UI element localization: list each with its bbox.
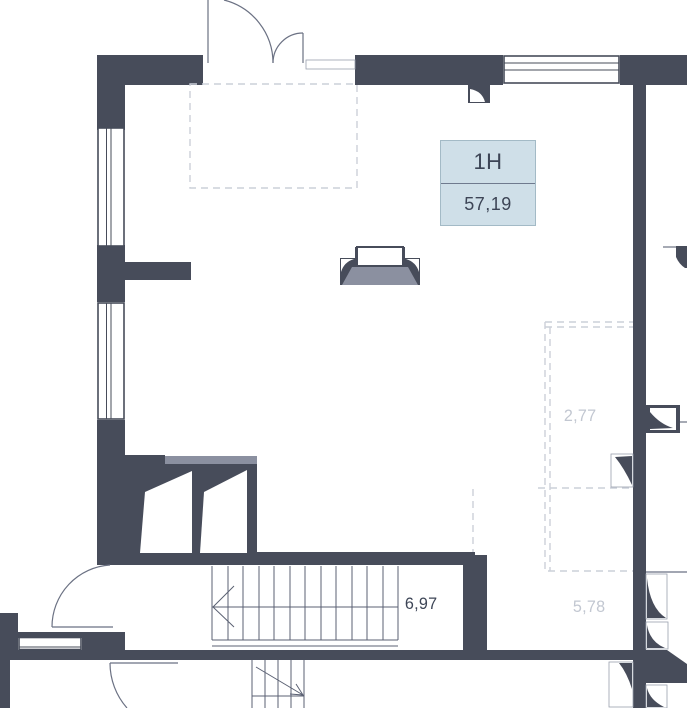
entrance-double-door: [208, 0, 355, 69]
lobby-door: [52, 565, 113, 627]
window-top: [504, 56, 619, 83]
room-area-label: 6,97: [405, 594, 438, 614]
future-partitions-dashed: [473, 322, 633, 571]
lower-exit-door: [110, 663, 178, 708]
floor-plan: 1Н 57,19 2,77 6,97 5,78: [0, 0, 687, 708]
windowsill-strip: [165, 456, 257, 464]
unit-id: 1Н: [441, 141, 535, 183]
entrance-sidelight-panel: [306, 60, 355, 69]
unit-label-box[interactable]: 1Н 57,19: [440, 140, 536, 226]
wall-niche-fixture: [340, 247, 420, 285]
window-bottom-left: [19, 638, 81, 650]
lower-stair-flight: [252, 660, 304, 708]
stair-down-arrow: [256, 667, 303, 695]
upper-stair-flight: [212, 566, 398, 646]
window-left-upper: [98, 128, 124, 246]
room-area-label: 5,78: [573, 597, 606, 617]
window-left-lower: [98, 303, 124, 419]
unit-area: 57,19: [441, 183, 535, 226]
entrance-zone-dashed: [190, 84, 357, 188]
room-area-label: 2,77: [564, 406, 597, 426]
